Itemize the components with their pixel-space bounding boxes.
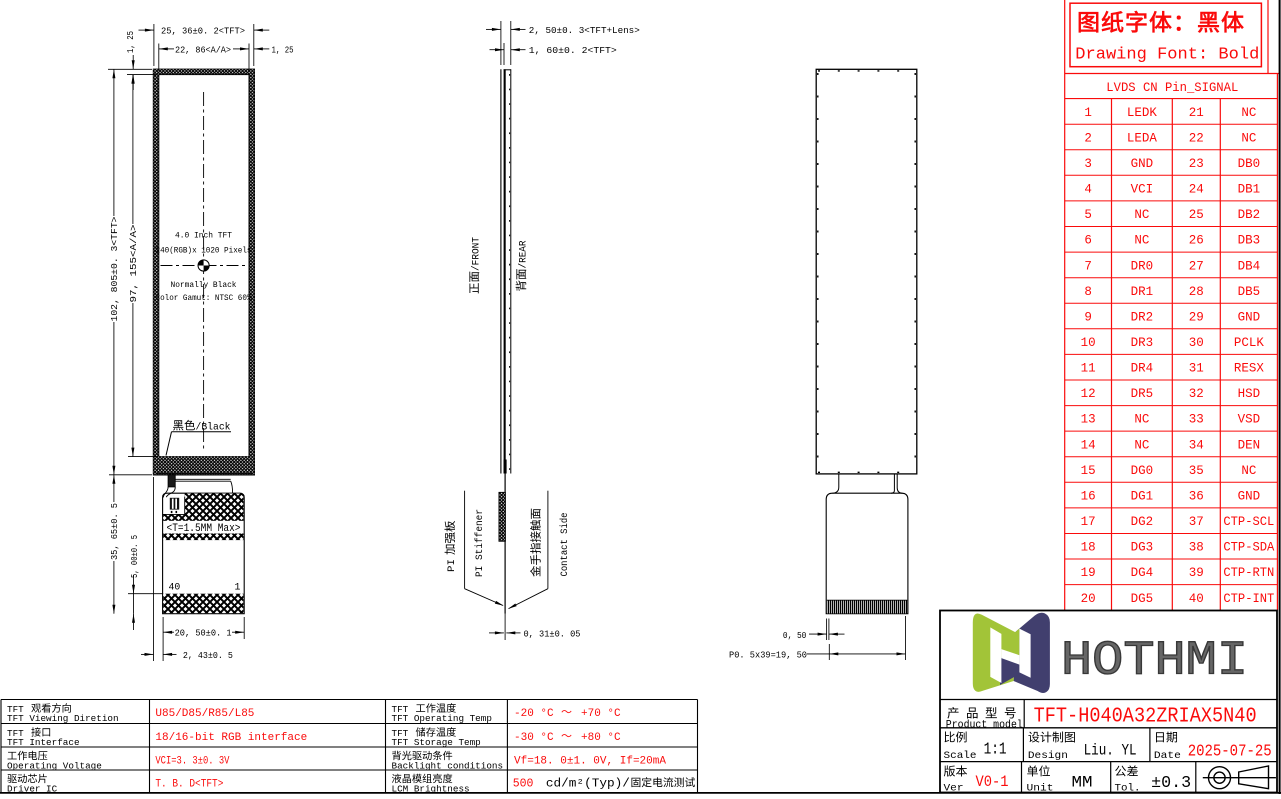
svg-text:1:1: 1:1 xyxy=(984,741,1007,760)
svg-text:29: 29 xyxy=(1189,310,1204,324)
svg-text:500: 500 xyxy=(513,777,534,790)
svg-text:35, 65±0. 5: 35, 65±0. 5 xyxy=(109,503,120,560)
svg-text:T. B. D<TFT>: T. B. D<TFT> xyxy=(155,778,223,790)
svg-text:CTP-SCL: CTP-SCL xyxy=(1223,515,1274,529)
svg-text:35: 35 xyxy=(1189,464,1204,478)
svg-text:2: 2 xyxy=(1084,131,1092,145)
svg-text:DB2: DB2 xyxy=(1238,208,1261,222)
svg-text:Operating Voltage: Operating Voltage xyxy=(7,761,102,772)
svg-text:5, 00±0. 5: 5, 00±0. 5 xyxy=(129,535,140,578)
svg-text:22, 86<A/A>: 22, 86<A/A> xyxy=(175,44,231,55)
svg-text:Vf=18. 0±1. 0V, If=20mA: Vf=18. 0±1. 0V, If=20mA xyxy=(514,755,666,767)
svg-text:DG2: DG2 xyxy=(1131,515,1154,529)
svg-text:Design: Design xyxy=(1028,750,1068,762)
svg-text:24: 24 xyxy=(1189,183,1204,197)
svg-text:6: 6 xyxy=(1084,234,1092,248)
svg-text:<T=1.5MM Max>: <T=1.5MM Max> xyxy=(167,523,241,535)
svg-text:17: 17 xyxy=(1081,515,1096,529)
svg-text:25, 36±0. 2<TFT>: 25, 36±0. 2<TFT> xyxy=(161,26,245,37)
svg-text:40: 40 xyxy=(1189,592,1204,606)
svg-text:NC: NC xyxy=(1134,438,1149,452)
svg-text:U85/D85/R85/L85: U85/D85/R85/L85 xyxy=(155,708,254,720)
svg-text:1, 60±0. 2<TFT>: 1, 60±0. 2<TFT> xyxy=(529,45,617,56)
svg-text:TFT Storage Temp: TFT Storage Temp xyxy=(392,737,481,748)
svg-text:DG0: DG0 xyxy=(1131,464,1154,478)
svg-text:NC: NC xyxy=(1241,106,1256,120)
svg-text:NC: NC xyxy=(1241,464,1256,478)
svg-text:TFT-H040A32ZRIAX5N40: TFT-H040A32ZRIAX5N40 xyxy=(1034,706,1257,729)
svg-text:14: 14 xyxy=(1081,438,1096,452)
svg-text:NC: NC xyxy=(1134,413,1149,427)
svg-text:GND: GND xyxy=(1131,157,1154,171)
svg-text:Drawing Font: Bold: Drawing Font: Bold xyxy=(1075,46,1259,65)
svg-text:28: 28 xyxy=(1189,285,1204,299)
svg-text:11: 11 xyxy=(1081,362,1096,376)
svg-text:-30 °C: -30 °C xyxy=(514,732,554,744)
svg-text:DG4: DG4 xyxy=(1131,566,1154,580)
svg-text:7: 7 xyxy=(1084,259,1092,273)
svg-text:23: 23 xyxy=(1189,157,1204,171)
svg-text:34: 34 xyxy=(1189,438,1204,452)
svg-text:CTP-SDA: CTP-SDA xyxy=(1223,541,1274,555)
svg-text:36: 36 xyxy=(1189,490,1204,504)
svg-text:Backlight conditions: Backlight conditions xyxy=(392,761,504,772)
svg-text:1, 25: 1, 25 xyxy=(272,44,294,55)
svg-text:+80 °C: +80 °C xyxy=(581,732,621,744)
svg-text:TFT Viewing Diretion: TFT Viewing Diretion xyxy=(7,713,119,724)
svg-text:33: 33 xyxy=(1189,413,1204,427)
svg-text:DR5: DR5 xyxy=(1131,387,1154,401)
svg-text:TFT Interface: TFT Interface xyxy=(7,737,80,748)
svg-text:NC: NC xyxy=(1241,131,1256,145)
svg-text:LEDK: LEDK xyxy=(1127,106,1158,120)
svg-text:Product model: Product model xyxy=(946,719,1023,731)
svg-text:TFT Operating Temp: TFT Operating Temp xyxy=(392,713,492,724)
svg-text:DR1: DR1 xyxy=(1131,285,1154,299)
svg-text:DEN: DEN xyxy=(1238,438,1261,452)
svg-text:18: 18 xyxy=(1081,541,1096,555)
svg-text:RESX: RESX xyxy=(1234,362,1265,376)
svg-text:9: 9 xyxy=(1084,310,1092,324)
svg-text:20: 20 xyxy=(1081,592,1096,606)
svg-text:/REAR: /REAR xyxy=(517,240,529,269)
svg-text:10: 10 xyxy=(1081,336,1096,350)
svg-text:8: 8 xyxy=(1084,285,1092,299)
svg-text:DB0: DB0 xyxy=(1238,157,1261,171)
svg-text:V0-1: V0-1 xyxy=(976,773,1009,791)
svg-text:Date: Date xyxy=(1154,750,1181,762)
svg-text:cd/m²(Typ)/: cd/m²(Typ)/ xyxy=(546,777,630,790)
svg-text:32: 32 xyxy=(1189,387,1204,401)
svg-text:25: 25 xyxy=(1189,208,1204,222)
svg-text:3: 3 xyxy=(1084,157,1092,171)
svg-text:HOTHMI: HOTHMI xyxy=(1061,634,1248,689)
svg-text:15: 15 xyxy=(1081,464,1096,478)
svg-text:2025-07-25: 2025-07-25 xyxy=(1188,742,1272,761)
svg-text:20, 50±0. 1: 20, 50±0. 1 xyxy=(175,628,232,639)
svg-text:VCI: VCI xyxy=(1131,183,1154,197)
svg-text:P0. 5x39=19, 50: P0. 5x39=19, 50 xyxy=(729,649,807,660)
svg-text:LVDS CN Pin_SIGNAL: LVDS CN Pin_SIGNAL xyxy=(1106,81,1238,95)
svg-text:37: 37 xyxy=(1189,515,1204,529)
svg-text:±0.3: ±0.3 xyxy=(1151,773,1191,792)
svg-text:4: 4 xyxy=(1084,183,1092,197)
svg-text:Liu. YL: Liu. YL xyxy=(1084,742,1137,760)
svg-text:DR3: DR3 xyxy=(1131,336,1154,350)
svg-text:38: 38 xyxy=(1189,541,1204,555)
svg-text:GND: GND xyxy=(1238,490,1261,504)
svg-text:DR0: DR0 xyxy=(1131,259,1154,273)
svg-text:DG5: DG5 xyxy=(1131,592,1154,606)
svg-text:DG3: DG3 xyxy=(1131,541,1154,555)
svg-text:102, 805±0. 3<TFT>: 102, 805±0. 3<TFT> xyxy=(109,216,120,321)
svg-text:/FRONT: /FRONT xyxy=(470,237,482,271)
svg-text:1: 1 xyxy=(1084,106,1092,120)
svg-text:Contact Side: Contact Side xyxy=(559,513,571,577)
svg-text:VCI=3. 3±0. 3V: VCI=3. 3±0. 3V xyxy=(155,755,229,767)
svg-text:40: 40 xyxy=(169,582,181,593)
svg-text:240(RGB)x 1020 Pixels: 240(RGB)x 1020 Pixels xyxy=(156,246,252,255)
svg-text:CTP-RTN: CTP-RTN xyxy=(1223,566,1274,580)
svg-text:1: 1 xyxy=(235,582,241,593)
svg-text:16: 16 xyxy=(1081,490,1096,504)
svg-text:Normally Black: Normally Black xyxy=(171,281,237,290)
svg-text:DB4: DB4 xyxy=(1238,259,1261,273)
svg-text:Scale: Scale xyxy=(944,750,977,762)
svg-text:21: 21 xyxy=(1189,106,1204,120)
svg-text:4.0 Inch TFT: 4.0 Inch TFT xyxy=(175,232,232,241)
svg-text:30: 30 xyxy=(1189,336,1204,350)
svg-text:MM: MM xyxy=(1072,774,1093,792)
svg-text:DB3: DB3 xyxy=(1238,234,1261,248)
svg-text:97, 155<A/A>: 97, 155<A/A> xyxy=(128,224,139,302)
svg-text:DR2: DR2 xyxy=(1131,310,1154,324)
svg-text:Color Gamut: NTSC 60%: Color Gamut: NTSC 60% xyxy=(156,294,252,303)
svg-text:0, 31±0. 05: 0, 31±0. 05 xyxy=(524,628,581,639)
svg-text:18/16-bit RGB interface: 18/16-bit RGB interface xyxy=(155,732,307,744)
svg-text:VSD: VSD xyxy=(1238,413,1261,427)
svg-text:DG1: DG1 xyxy=(1131,490,1154,504)
svg-text:27: 27 xyxy=(1189,259,1204,273)
svg-text:22: 22 xyxy=(1189,131,1204,145)
svg-text:5: 5 xyxy=(1084,208,1092,222)
svg-text:LEDA: LEDA xyxy=(1127,131,1158,145)
svg-text:DB1: DB1 xyxy=(1238,183,1261,197)
svg-text:31: 31 xyxy=(1189,362,1204,376)
svg-text:+70 °C: +70 °C xyxy=(581,708,621,720)
svg-text:1, 25: 1, 25 xyxy=(125,31,136,53)
svg-text:19: 19 xyxy=(1081,566,1096,580)
svg-text:-20 °C: -20 °C xyxy=(514,708,554,720)
svg-text:2, 43±0. 5: 2, 43±0. 5 xyxy=(183,650,233,661)
svg-text:2, 50±0. 3<TFT+Lens>: 2, 50±0. 3<TFT+Lens> xyxy=(529,25,640,36)
svg-text:HSD: HSD xyxy=(1238,387,1261,401)
svg-text:GND: GND xyxy=(1238,310,1261,324)
svg-text:PI: PI xyxy=(446,559,458,572)
svg-text:CTP-INT: CTP-INT xyxy=(1223,592,1274,606)
svg-text:39: 39 xyxy=(1189,566,1204,580)
svg-text:NC: NC xyxy=(1134,208,1149,222)
svg-text:12: 12 xyxy=(1081,387,1096,401)
svg-text:NC: NC xyxy=(1134,234,1149,248)
svg-text:PI Stiffener: PI Stiffener xyxy=(474,509,486,577)
svg-text:0, 50: 0, 50 xyxy=(783,630,807,641)
svg-text:26: 26 xyxy=(1189,234,1204,248)
svg-text:13: 13 xyxy=(1081,413,1096,427)
svg-text:DR4: DR4 xyxy=(1131,362,1154,376)
svg-text:PCLK: PCLK xyxy=(1234,336,1265,350)
svg-text:DB5: DB5 xyxy=(1238,285,1261,299)
